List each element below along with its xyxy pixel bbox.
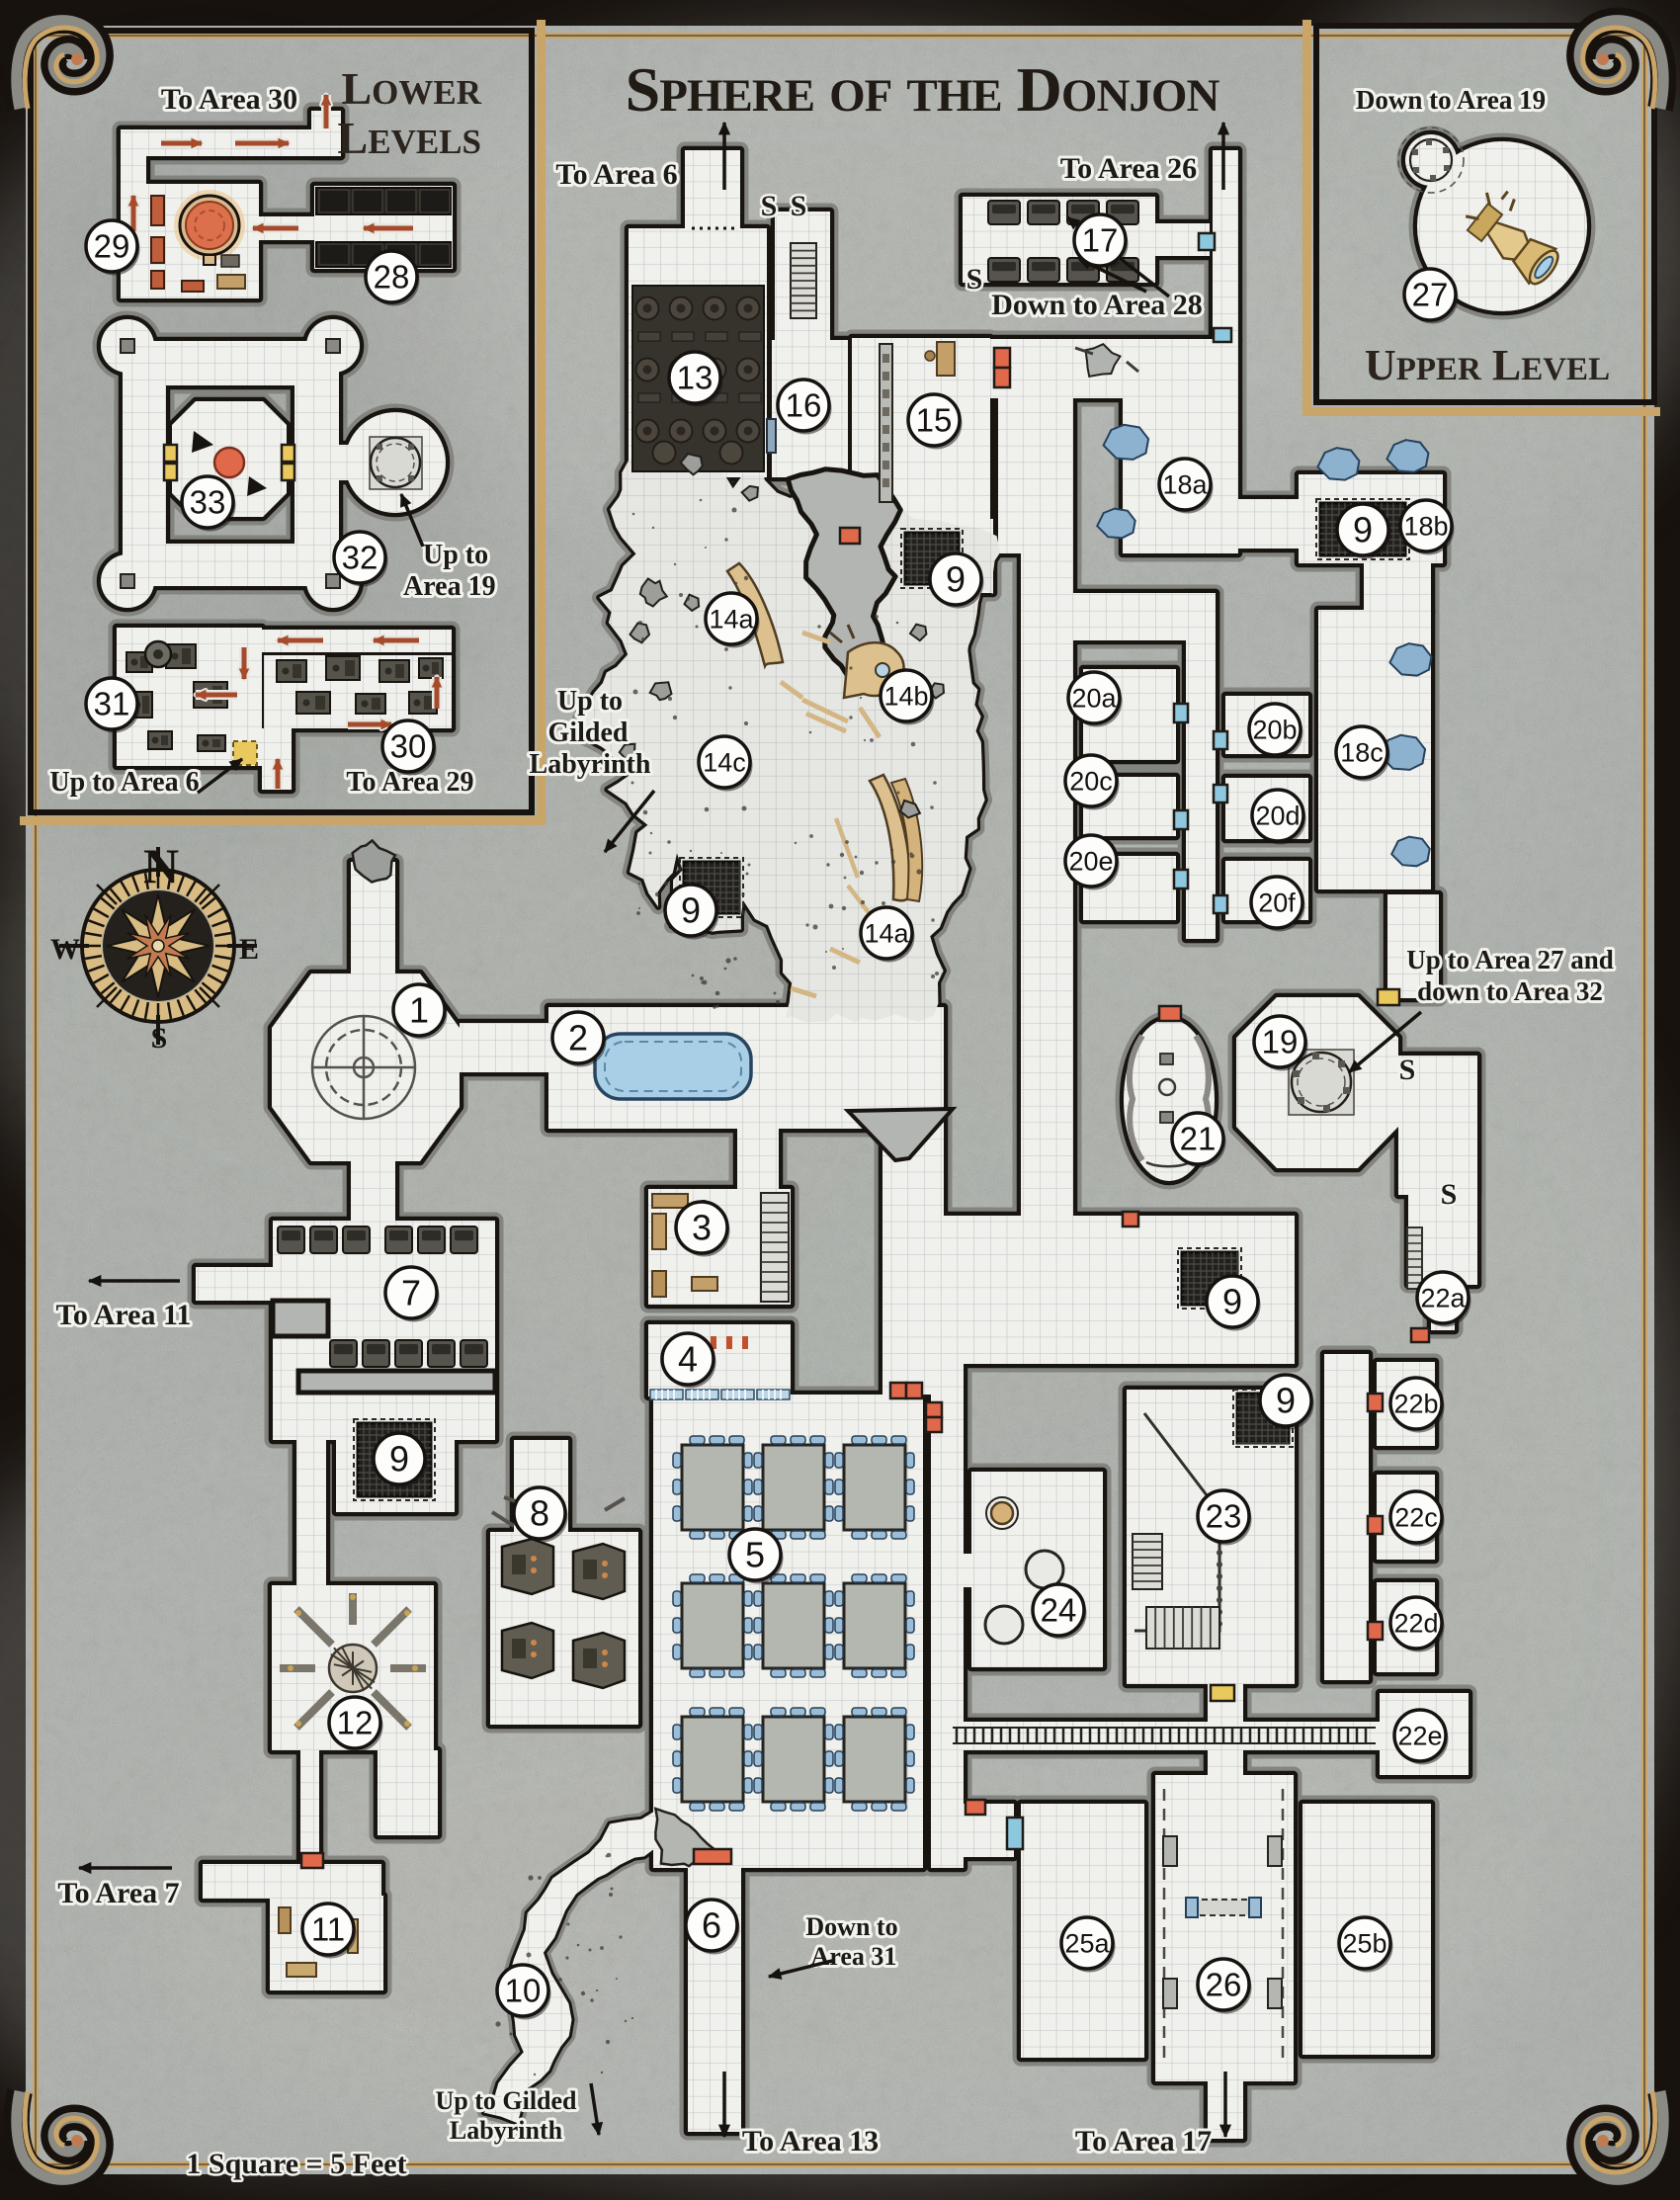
- svg-text:14b: 14b: [883, 681, 928, 711]
- svg-text:9: 9: [1276, 1380, 1296, 1420]
- svg-text:28: 28: [374, 258, 410, 295]
- svg-text:22d: 22d: [1393, 1608, 1438, 1638]
- svg-text:22b: 22b: [1393, 1389, 1438, 1418]
- svg-text:20f: 20f: [1258, 888, 1296, 917]
- svg-text:12: 12: [337, 1704, 374, 1740]
- svg-text:2: 2: [568, 1017, 588, 1058]
- svg-text:27: 27: [1412, 276, 1449, 312]
- svg-text:To Area 26: To Area 26: [1060, 152, 1197, 185]
- svg-text:Down to Area 28: Down to Area 28: [991, 289, 1203, 321]
- svg-text:9: 9: [946, 558, 966, 599]
- svg-text:6: 6: [702, 1904, 721, 1945]
- svg-text:Down to Area 19: Down to Area 19: [1356, 85, 1546, 115]
- svg-text:1: 1: [409, 989, 429, 1030]
- svg-text:1 Square = 5 Feet: 1 Square = 5 Feet: [186, 2148, 406, 2180]
- svg-text:29: 29: [94, 227, 130, 264]
- svg-text:9: 9: [1222, 1281, 1242, 1321]
- svg-text:14c: 14c: [703, 747, 746, 777]
- svg-text:S: S: [1441, 1178, 1458, 1211]
- svg-text:20d: 20d: [1255, 801, 1300, 830]
- svg-text:22a: 22a: [1420, 1283, 1466, 1312]
- svg-text:S: S: [1399, 1054, 1416, 1086]
- svg-text:14a: 14a: [709, 604, 754, 634]
- svg-text:S: S: [791, 190, 807, 222]
- svg-text:31: 31: [94, 685, 130, 721]
- svg-text:32: 32: [342, 539, 378, 575]
- svg-text:5: 5: [745, 1534, 765, 1574]
- svg-text:Down to: Down to: [805, 1912, 897, 1941]
- svg-text:7: 7: [401, 1272, 421, 1312]
- svg-text:To Area 11: To Area 11: [56, 1299, 192, 1331]
- svg-text:15: 15: [916, 401, 953, 438]
- svg-text:To Area 13: To Area 13: [742, 2125, 879, 2158]
- svg-text:33: 33: [190, 483, 226, 520]
- svg-text:Up to Gilded: Up to Gilded: [435, 2086, 577, 2115]
- svg-text:Area 31: Area 31: [811, 1942, 897, 1971]
- svg-text:9: 9: [389, 1438, 409, 1479]
- svg-text:down to Area 32: down to Area 32: [1417, 976, 1603, 1006]
- svg-text:11: 11: [311, 1910, 345, 1947]
- svg-text:N: N: [143, 838, 179, 893]
- svg-text:Labyrinth: Labyrinth: [530, 749, 651, 780]
- svg-text:18b: 18b: [1403, 511, 1448, 541]
- svg-text:10: 10: [505, 1972, 542, 2008]
- svg-text:Up to Area 6: Up to Area 6: [49, 767, 199, 798]
- svg-text:S: S: [966, 263, 983, 296]
- svg-text:E: E: [239, 933, 259, 966]
- svg-text:Up to: Up to: [423, 540, 488, 570]
- svg-text:14a: 14a: [864, 918, 909, 948]
- svg-text:Area 19: Area 19: [403, 571, 496, 602]
- svg-text:Up to: Up to: [557, 686, 623, 717]
- svg-text:S: S: [761, 190, 778, 222]
- svg-text:13: 13: [677, 359, 714, 395]
- svg-text:26: 26: [1206, 1966, 1242, 2002]
- svg-text:3: 3: [692, 1207, 712, 1247]
- svg-text:25b: 25b: [1342, 1928, 1386, 1958]
- svg-text:Up to Area 27 and: Up to Area 27 and: [1406, 945, 1614, 974]
- svg-text:Gilded: Gilded: [548, 718, 629, 748]
- svg-text:25a: 25a: [1064, 1928, 1110, 1958]
- svg-text:30: 30: [390, 727, 427, 764]
- svg-text:9: 9: [681, 889, 701, 930]
- svg-text:W: W: [50, 933, 80, 966]
- svg-text:22c: 22c: [1394, 1502, 1438, 1532]
- svg-text:20b: 20b: [1252, 715, 1297, 744]
- svg-text:23: 23: [1206, 1497, 1242, 1534]
- svg-text:To Area 17: To Area 17: [1075, 2125, 1212, 2158]
- svg-text:S: S: [151, 1022, 168, 1055]
- svg-text:To Area 7: To Area 7: [57, 1877, 179, 1909]
- svg-text:8: 8: [530, 1492, 549, 1533]
- svg-text:24: 24: [1041, 1591, 1077, 1628]
- svg-text:Labyrinth: Labyrinth: [450, 2116, 563, 2145]
- svg-text:21: 21: [1180, 1120, 1217, 1156]
- svg-text:20e: 20e: [1068, 846, 1113, 876]
- svg-text:To Area 30: To Area 30: [161, 83, 297, 116]
- svg-text:22e: 22e: [1397, 1721, 1442, 1750]
- svg-text:9: 9: [1353, 509, 1373, 550]
- svg-text:16: 16: [786, 386, 822, 423]
- svg-text:20a: 20a: [1071, 683, 1117, 713]
- svg-text:17: 17: [1082, 221, 1119, 258]
- svg-text:4: 4: [678, 1338, 698, 1379]
- svg-text:20c: 20c: [1069, 766, 1113, 796]
- svg-text:18a: 18a: [1162, 469, 1208, 499]
- svg-text:19: 19: [1262, 1023, 1299, 1059]
- svg-text:18c: 18c: [1340, 737, 1384, 767]
- svg-text:To Area 6: To Area 6: [555, 158, 677, 191]
